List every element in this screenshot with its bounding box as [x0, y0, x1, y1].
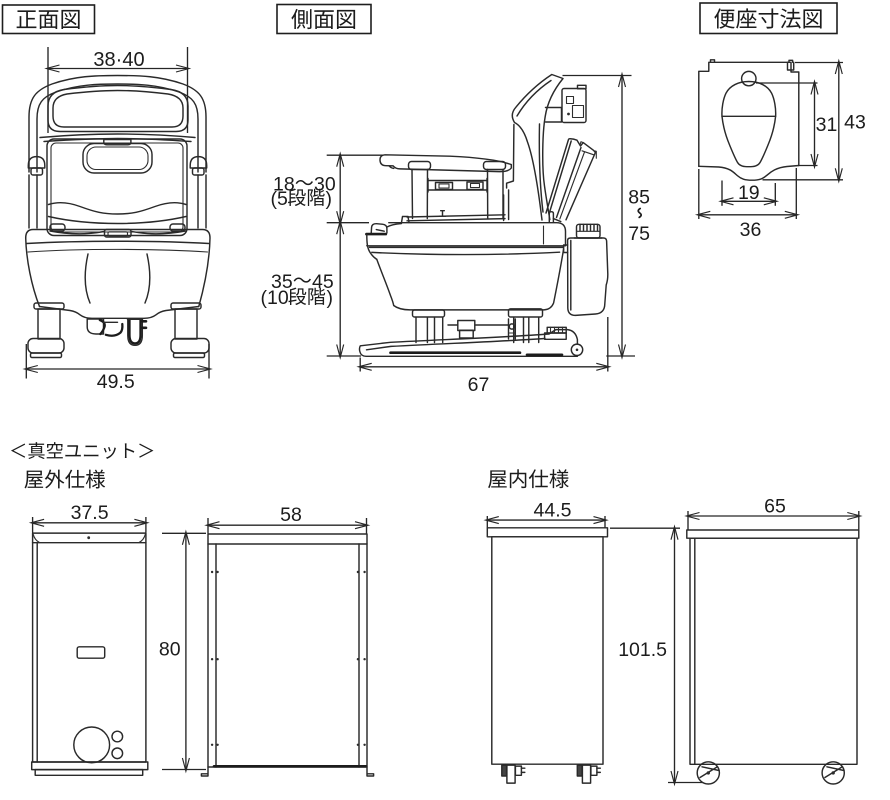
svg-text:36: 36 — [740, 219, 762, 241]
svg-text:101.5: 101.5 — [618, 639, 667, 661]
svg-text:(10: (10 — [261, 287, 289, 309]
svg-text:58: 58 — [280, 504, 302, 526]
svg-text:44.5: 44.5 — [534, 500, 572, 522]
svg-text:): ) — [326, 188, 333, 210]
svg-text:75: 75 — [628, 223, 650, 245]
svg-text:38·40: 38·40 — [93, 49, 144, 71]
svg-text:80: 80 — [159, 639, 181, 661]
svg-text:31: 31 — [816, 114, 838, 136]
svg-text:): ) — [327, 287, 334, 309]
svg-text:85: 85 — [628, 186, 650, 208]
svg-text:65: 65 — [764, 496, 786, 518]
svg-text:43: 43 — [844, 112, 866, 134]
svg-text:49.5: 49.5 — [97, 371, 135, 393]
svg-text:67: 67 — [468, 374, 490, 396]
svg-text:19: 19 — [738, 182, 760, 204]
svg-text:(5: (5 — [271, 188, 288, 210]
svg-text:37.5: 37.5 — [71, 502, 109, 524]
